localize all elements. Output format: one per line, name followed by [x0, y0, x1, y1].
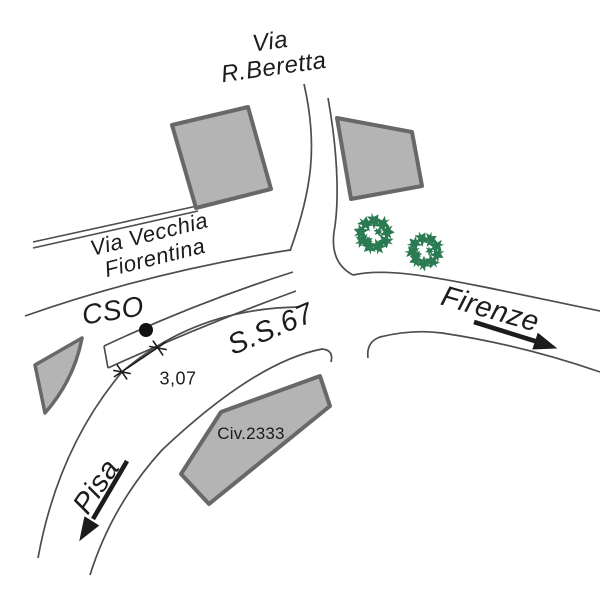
measurement-dot — [139, 323, 153, 337]
pisa-arrow-head-icon — [80, 517, 98, 540]
cso-island-end-cap — [104, 346, 108, 368]
building-north-center — [172, 107, 271, 208]
map-sketch: Via R.Beretta Via Vecchia Fiorentina CSO… — [0, 0, 600, 600]
tree-icon — [395, 221, 453, 281]
building-west-wedge — [35, 338, 82, 413]
building-north-east — [337, 118, 422, 199]
label-civ2333: Civ.2333 — [217, 425, 284, 443]
direction-arrows — [80, 322, 556, 540]
road-edge-firenze-bottom-hook — [368, 332, 600, 372]
trees — [351, 210, 454, 281]
road-edge-beretta-left — [290, 84, 312, 251]
firenze-arrow-head-icon — [533, 334, 556, 350]
tree-icon — [351, 210, 396, 258]
label-lane-width: 3,07 — [159, 369, 196, 388]
